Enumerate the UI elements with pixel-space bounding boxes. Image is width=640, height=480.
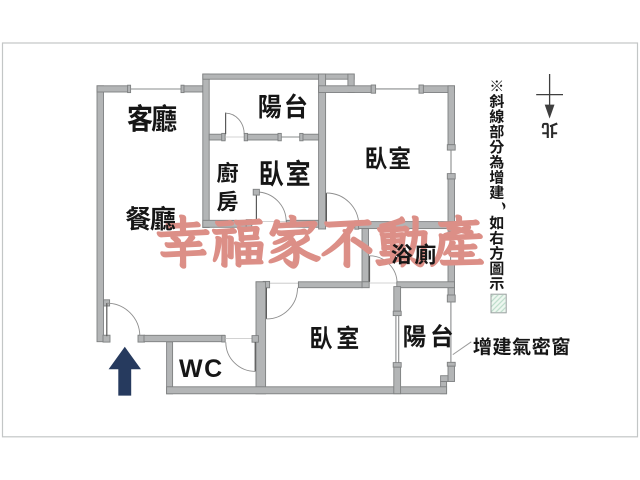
svg-text:WC: WC (179, 355, 224, 383)
